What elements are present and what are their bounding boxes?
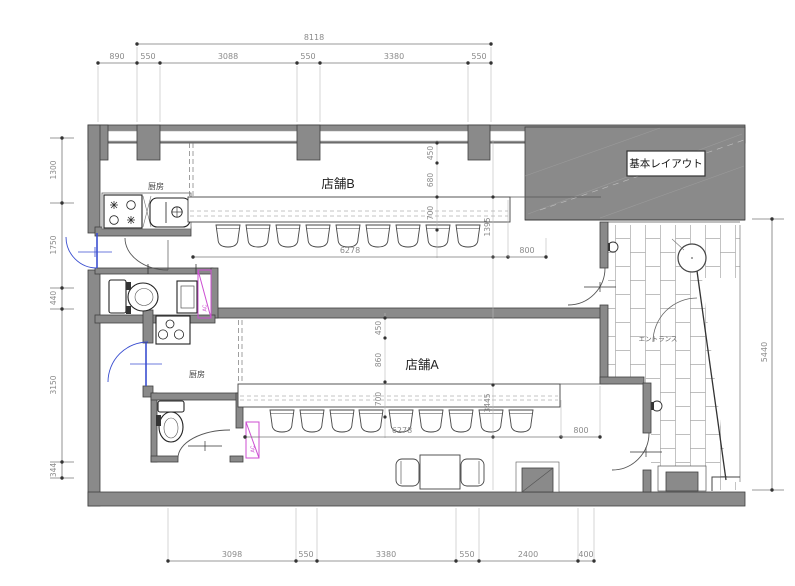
stool	[359, 410, 383, 432]
wall-divider-ab	[213, 308, 601, 318]
store-b-counter	[188, 197, 510, 222]
dim-bottom-0: 3098	[222, 550, 242, 559]
corridor-door-b-arc	[568, 268, 605, 305]
wall-bottom	[88, 492, 745, 506]
stool	[276, 225, 300, 247]
dim-top-5: 550	[471, 52, 486, 61]
stool	[509, 410, 533, 432]
toilet-b-bowl	[128, 283, 158, 311]
toilet-b-arm-2	[126, 306, 131, 314]
wall-left-lower	[88, 270, 100, 506]
top-pier-2	[297, 125, 320, 160]
stool	[300, 410, 324, 432]
vestibule-b-door-arc	[125, 238, 168, 270]
kitchen-a: 厨房	[108, 316, 205, 386]
wall-left-upper	[88, 125, 100, 233]
glazing-2	[160, 131, 297, 141]
stool	[396, 225, 420, 247]
dim-a-800: 800	[573, 426, 588, 435]
corridor-door-a-arc	[612, 433, 649, 470]
wall-toilet-b-bottom	[95, 315, 215, 323]
dim-left-2: 440	[49, 291, 58, 306]
wall-toilet-a-bottom-r	[230, 456, 243, 462]
dim-b-1395: 1395	[483, 217, 492, 236]
chair-right	[461, 459, 484, 486]
dim-a-860: 860	[374, 353, 383, 368]
dim-b-680: 680	[426, 173, 435, 188]
entry-door-b-arc	[66, 237, 97, 268]
dim-top-3: 550	[300, 52, 315, 61]
dimensions-top: 8118 890 550 3088 550 3380 550	[96, 33, 492, 122]
toilet-a-tank	[158, 401, 184, 412]
table	[420, 455, 460, 489]
dim-b-450: 450	[426, 146, 435, 161]
toilet-b-tank	[109, 280, 126, 313]
entry-door-b	[66, 233, 112, 268]
burner-star-1	[110, 201, 118, 209]
dim-left-4: 344	[49, 463, 58, 478]
stool	[336, 225, 360, 247]
stool	[270, 410, 294, 432]
dim-top-1: 550	[140, 52, 155, 61]
top-pier-1	[137, 125, 160, 160]
dim-a-700: 700	[374, 392, 383, 407]
stool	[306, 225, 330, 247]
dim-bottom-1: 550	[298, 550, 313, 559]
corridor-pier	[666, 472, 698, 491]
dimensions-left: 1300 1750 440 3150 344	[49, 136, 74, 479]
dim-bottom-3: 550	[459, 550, 474, 559]
dim-b-800: 800	[519, 246, 534, 255]
ac-a-label: AC	[251, 445, 257, 452]
floor-plan-drawing: エントランス	[0, 0, 795, 586]
table-set	[396, 455, 484, 489]
dim-b-6278: 6278	[340, 246, 360, 255]
dim-top-overall: 8118	[304, 33, 324, 42]
sink-b	[150, 198, 190, 227]
toilet-a-arm	[156, 415, 161, 426]
ac-unit-b: AC	[198, 270, 211, 318]
glazing-4	[490, 131, 525, 141]
stool	[216, 225, 240, 247]
store-a: 店舗A	[238, 320, 662, 489]
top-pier-3	[468, 125, 490, 160]
dim-bottom-2: 3380	[376, 550, 396, 559]
stool	[426, 225, 450, 247]
entry-door-a	[108, 342, 162, 386]
wall-toilet-a-top	[151, 393, 243, 400]
wall-store-a-right-upper	[643, 383, 651, 433]
dim-top-4: 3380	[384, 52, 404, 61]
wall-corridor-step	[600, 377, 644, 384]
dim-a-450: 450	[374, 321, 383, 336]
title-block: 基本レイアウト	[627, 151, 705, 176]
stool	[246, 225, 270, 247]
wall-door-a-stub-top	[143, 310, 153, 343]
wall-corridor-mid	[600, 305, 608, 384]
dim-top-2: 3088	[218, 52, 238, 61]
store-a-label: 店舗A	[405, 358, 439, 372]
column-center-dot	[691, 257, 693, 259]
wall-corridor-upper	[600, 222, 608, 268]
stove-b	[104, 195, 142, 228]
chair-left	[396, 459, 419, 486]
glazing-3	[320, 131, 468, 141]
ac-unit-a: AC	[246, 422, 259, 458]
wall-store-a-right-lower	[643, 470, 651, 492]
glazing-1	[108, 131, 137, 141]
stool	[366, 225, 390, 247]
stool	[456, 225, 480, 247]
store-b-stools	[216, 225, 480, 247]
store-a-counter	[238, 384, 560, 407]
dim-left-1: 1750	[49, 235, 58, 254]
wall-toilet-a-left	[151, 393, 157, 462]
stool	[419, 410, 443, 432]
store-b-label: 店舗B	[321, 177, 354, 191]
ac-b-label: AC	[203, 304, 209, 311]
dim-left-0: 1300	[49, 160, 58, 179]
dim-left-3: 3150	[49, 375, 58, 394]
wall-toilet-a-bottom-l	[151, 456, 178, 462]
title-label: 基本レイアウト	[629, 157, 703, 170]
entrance-label: エントランス	[639, 335, 678, 343]
dim-bottom-5: 400	[578, 550, 593, 559]
dim-a-6278: 6278	[392, 426, 412, 435]
dim-b-700: 700	[426, 206, 435, 221]
wall-toilet-b-right	[211, 268, 218, 318]
stool	[330, 410, 354, 432]
dimensions-right: 5440	[752, 217, 784, 491]
dimensions-bottom: 3098 550 3380 550 2400 400	[166, 508, 595, 563]
kitchen-a-label: 厨房	[189, 369, 205, 379]
dim-a-3445: 3445	[483, 393, 492, 412]
toilet-room-a: AC	[156, 401, 259, 458]
toilet-b-arm-1	[126, 282, 131, 290]
dim-right-overall: 5440	[760, 342, 769, 362]
entry-door-a-arc	[108, 342, 148, 382]
toilet-a-door-arc	[178, 430, 230, 458]
dim-bottom-4: 2400	[518, 550, 538, 559]
dim-top-0: 890	[109, 52, 124, 61]
wall-toilet-b-top	[95, 268, 213, 274]
toilet-a-bowl	[159, 412, 183, 442]
stool	[449, 410, 473, 432]
kitchen-b-label: 厨房	[148, 181, 164, 191]
kitchen-b: 厨房	[102, 181, 191, 270]
burner-star-2	[127, 216, 135, 224]
entrance-corridor: エントランス	[606, 222, 740, 491]
